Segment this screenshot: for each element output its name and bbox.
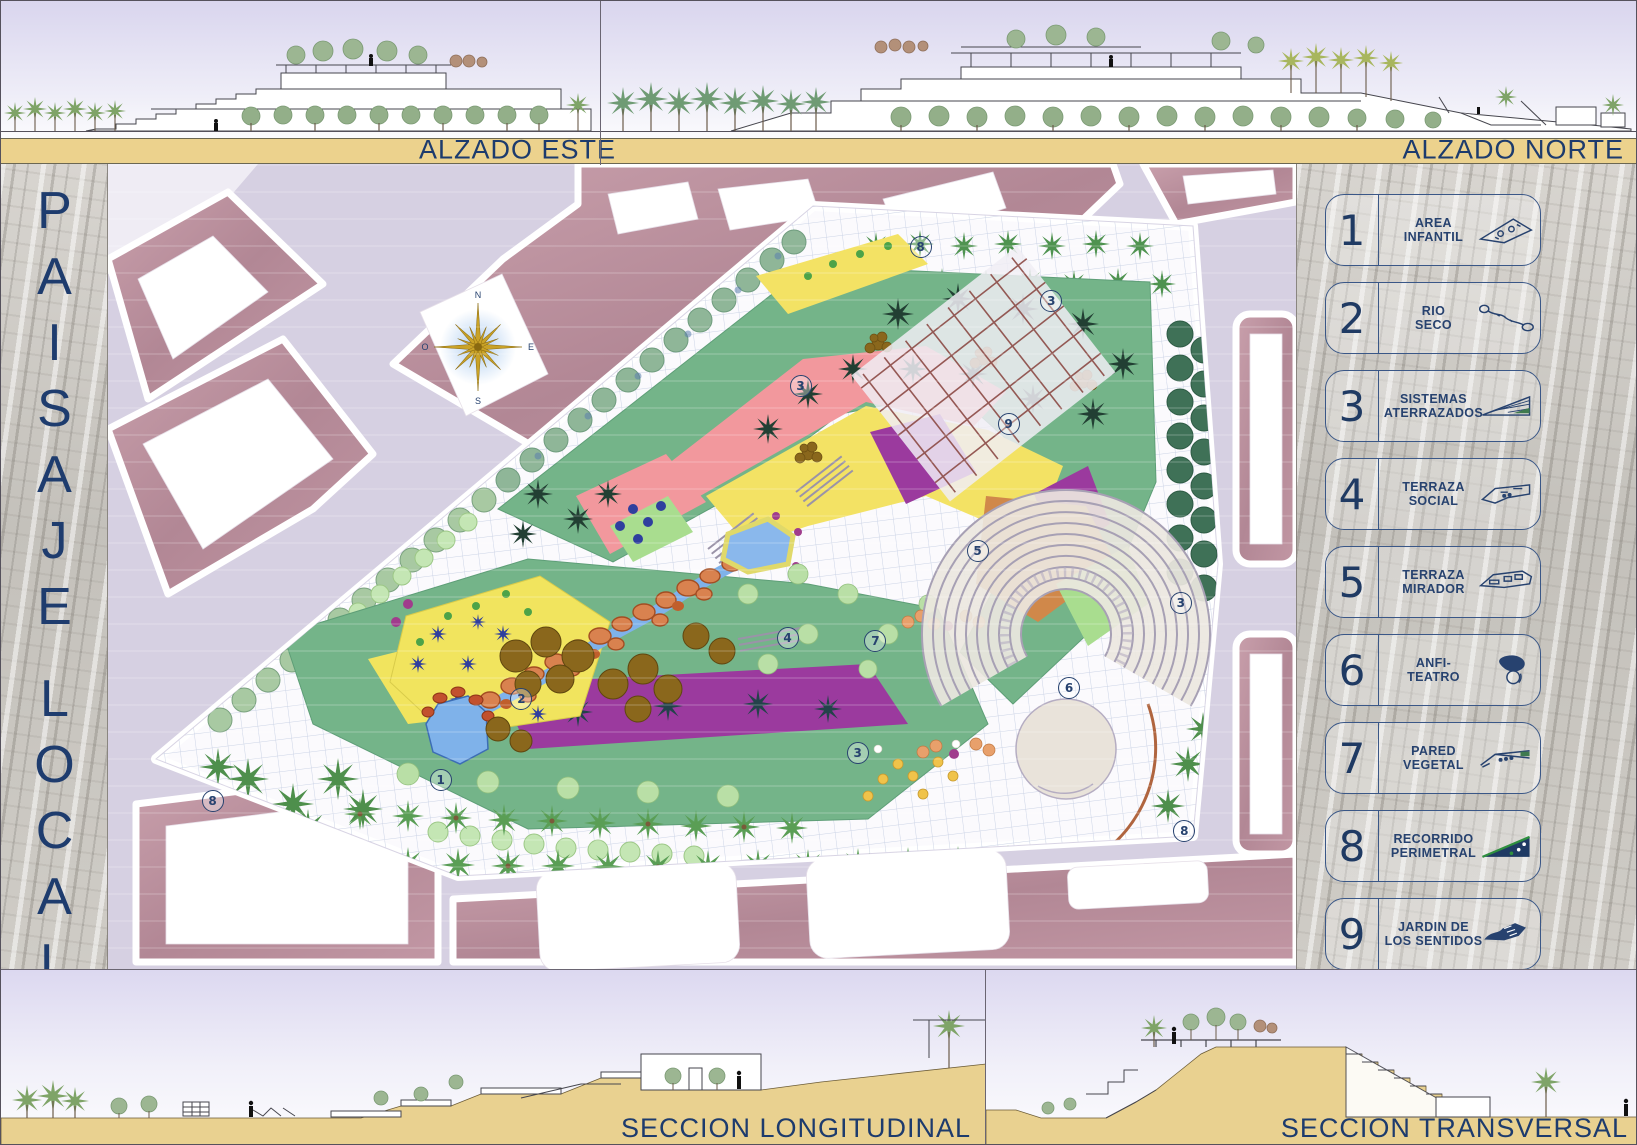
plan-marker-3: 3 — [1170, 592, 1192, 614]
elevation-north-panel — [601, 1, 1637, 138]
section-transversal-panel: SECCION TRANSVERSAL — [986, 970, 1637, 1145]
elevation-north-drawing — [601, 1, 1637, 138]
legend-number: 7 — [1326, 723, 1378, 793]
band-divider — [600, 139, 601, 165]
legend-strip: 1 AREA INFANTIL 2 RIO SECO 3 SISTEMAS AT… — [1296, 164, 1637, 969]
elevation-east-drawing — [1, 1, 601, 138]
elevation-label-band: ALZADO ESTE ALZADO NORTE — [1, 138, 1637, 164]
plan-marker-7: 7 — [864, 630, 886, 652]
plan-markers: 12333345678889 — [108, 164, 1296, 969]
legend-number: 5 — [1326, 547, 1378, 617]
plan-marker-9: 9 — [998, 413, 1020, 435]
pared-vegetal-icon — [1477, 739, 1535, 777]
legend-item-area-infantil: 1 AREA INFANTIL — [1325, 194, 1541, 266]
terraza-social-icon — [1477, 475, 1535, 513]
alzado-norte-label: ALZADO NORTE — [1402, 134, 1624, 165]
plan-marker-3: 3 — [790, 375, 812, 397]
legend: 1 AREA INFANTIL 2 RIO SECO 3 SISTEMAS AT… — [1325, 194, 1615, 986]
legend-item-sistemas-aterrazados: 3 SISTEMAS ATERRAZADOS — [1325, 370, 1541, 442]
legend-number: 1 — [1326, 195, 1378, 265]
legend-item-terraza-social: 4 TERRAZA SOCIAL — [1325, 458, 1541, 530]
middle-row: PAISAJE LOCAL — [1, 164, 1637, 969]
seccion-longitudinal-label: SECCION LONGITUDINAL — [621, 1113, 971, 1144]
legend-item-recorrido-perimetral: 8 RECORRIDO PERIMETRAL — [1325, 810, 1541, 882]
elevations-row — [1, 1, 1637, 138]
presentation-board: ALZADO ESTE ALZADO NORTE PAISAJE LOCAL — [0, 0, 1637, 1145]
plan-marker-8: 8 — [910, 236, 932, 258]
terraza-mirador-icon — [1477, 563, 1535, 601]
legend-number: 4 — [1326, 459, 1378, 529]
legend-number: 9 — [1326, 899, 1378, 969]
legend-number: 8 — [1326, 811, 1378, 881]
legend-item-pared-vegetal: 7 PARED VEGETAL — [1325, 722, 1541, 794]
legend-item-anfiteatro: 6 ANFI- TEATRO — [1325, 634, 1541, 706]
rio-seco-icon — [1477, 299, 1535, 337]
site-plan: N S E O 12333345678889 — [108, 164, 1296, 969]
seccion-transversal-label: SECCION TRANSVERSAL — [1281, 1113, 1628, 1144]
elevation-east-panel — [1, 1, 601, 138]
plan-marker-3: 3 — [1040, 290, 1062, 312]
area-infantil-icon — [1477, 211, 1535, 249]
alzado-este-label: ALZADO ESTE — [419, 134, 616, 165]
legend-item-terraza-mirador: 5 TERRAZA MIRADOR — [1325, 546, 1541, 618]
legend-number: 2 — [1326, 283, 1378, 353]
left-title-strip: PAISAJE LOCAL — [1, 164, 108, 969]
plan-marker-2: 2 — [510, 688, 532, 710]
plan-marker-6: 6 — [1058, 677, 1080, 699]
title-word-paisaje: PAISAJE — [29, 182, 81, 644]
jardin-sentidos-icon — [1477, 915, 1535, 953]
sistemas-aterrazados-icon — [1477, 387, 1535, 425]
section-longitudinal-panel: SECCION LONGITUDINAL — [1, 970, 986, 1145]
plan-marker-5: 5 — [967, 540, 989, 562]
legend-item-rio-seco: 2 RIO SECO — [1325, 282, 1541, 354]
recorrido-perimetral-icon — [1477, 827, 1535, 865]
legend-item-jardin-sentidos: 9 JARDIN DE LOS SENTIDOS — [1325, 898, 1541, 970]
plan-marker-1: 1 — [430, 769, 452, 791]
sections-row: SECCION LONGITUDINAL SECC — [1, 969, 1637, 1145]
plan-marker-8: 8 — [1173, 820, 1195, 842]
plan-marker-4: 4 — [777, 627, 799, 649]
anfiteat ro-icon — [1477, 651, 1535, 689]
legend-number: 3 — [1326, 371, 1378, 441]
title-word-local: LOCAL — [29, 670, 81, 1000]
vertical-title: PAISAJE LOCAL — [1, 164, 108, 969]
plan-marker-8: 8 — [202, 790, 224, 812]
legend-number: 6 — [1326, 635, 1378, 705]
plan-marker-3: 3 — [847, 742, 869, 764]
